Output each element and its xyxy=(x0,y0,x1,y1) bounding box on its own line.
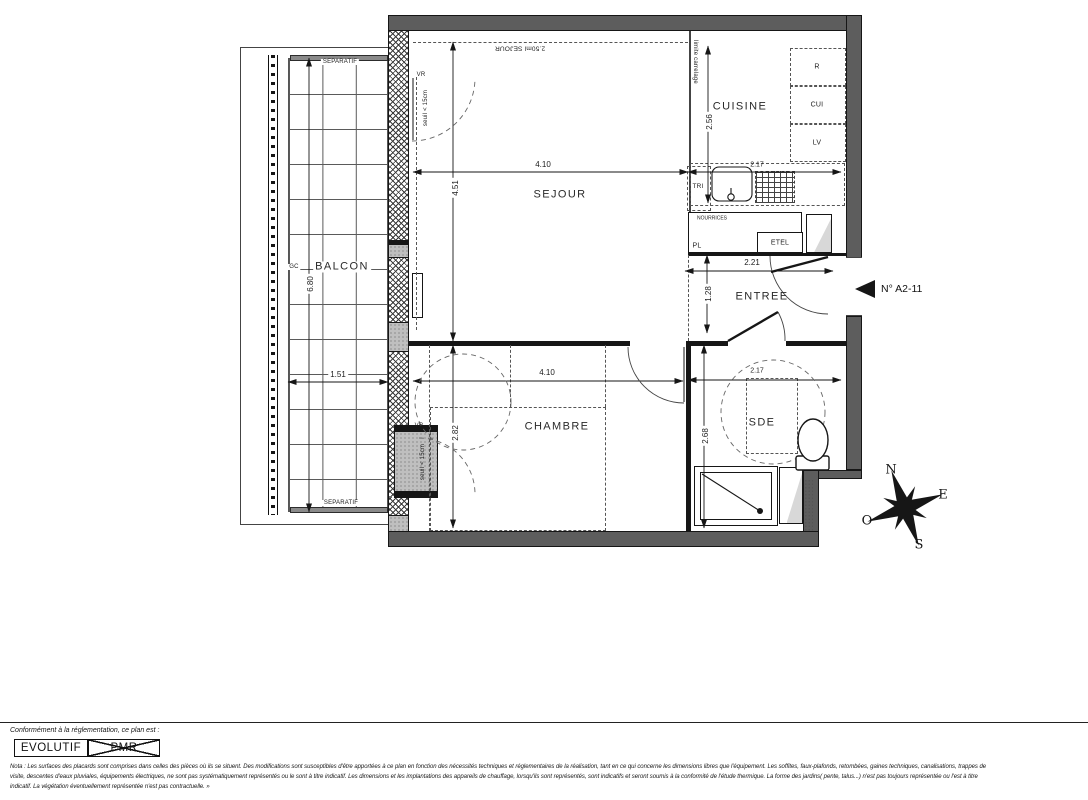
separatif-top-label: SEPARATIF xyxy=(321,59,359,65)
gc-label: GC xyxy=(287,264,300,270)
exterior-wall-right-lower xyxy=(846,316,862,470)
dim-chambre-width: 4.10 xyxy=(537,369,557,377)
legend-intro: Conformément à la réglementation, ce pla… xyxy=(10,727,159,734)
shower-tray-inner xyxy=(700,472,772,520)
room-label-cuisine: CUISINE xyxy=(713,102,767,113)
wall-sejour-chambre xyxy=(408,341,630,346)
facade-glazing-low xyxy=(388,497,409,515)
toilet xyxy=(796,419,829,470)
exterior-wall-step-horizontal xyxy=(812,470,862,479)
compass-north: N xyxy=(885,463,896,478)
tri-label: TRI xyxy=(692,184,703,191)
entrance-arrow-icon xyxy=(855,280,875,298)
dim-sejour-depth: 4.51 xyxy=(452,178,460,198)
vr-chambre-label: VR xyxy=(415,423,424,429)
legend-evolutif-label: EVOLUTIF xyxy=(21,742,81,754)
room-label-sejour: SEJOUR xyxy=(533,190,586,201)
dim-sde-width: 2.17 xyxy=(748,368,766,375)
unit-number-label: N° A2-11 xyxy=(881,283,922,295)
pl-label: PL xyxy=(693,243,702,250)
balcony-slab-edge-top xyxy=(240,47,388,48)
compass-star-diagonal xyxy=(873,476,937,540)
dim-entree-depth: 1.28 xyxy=(705,284,713,304)
nourrices-label: NOURRICES xyxy=(697,217,727,222)
room-label-sde: SDE xyxy=(749,418,776,429)
dim-entree-width: 2.21 xyxy=(742,259,762,267)
dim-sejour-width: 4.10 xyxy=(533,161,553,169)
dim-chambre-depth: 2.82 xyxy=(452,423,460,443)
dim-sde-depth: 2.68 xyxy=(702,426,710,446)
nota-line-1: Nota : Les surfaces des placards sont co… xyxy=(10,764,986,770)
seuil-sejour-label: seuil < 15cm xyxy=(423,90,429,126)
facade-corner-block-bottom xyxy=(388,515,409,532)
compass-rose xyxy=(854,457,957,560)
compass-south: S xyxy=(915,538,924,553)
entry-door-jamb-top xyxy=(846,257,862,258)
door-swing-sejour-balcony xyxy=(412,78,475,141)
fridge-label: R xyxy=(814,64,819,71)
vr-zone-sejour xyxy=(416,77,417,330)
sde-duct xyxy=(779,467,803,524)
legend-pmr-label: PMR xyxy=(110,742,137,754)
door-swing-sde xyxy=(778,312,785,341)
door-leaf-sde xyxy=(728,312,778,341)
room-label-balcon: BALCON xyxy=(313,262,371,273)
facade-glazing-sejour xyxy=(388,31,409,240)
wall-entree-sde-right xyxy=(786,341,846,346)
room-label-entree: ENTREE xyxy=(735,292,788,303)
plan-geometry xyxy=(0,0,1088,800)
balcony-slab-edge-bottom xyxy=(240,524,388,525)
footer-separator-line xyxy=(0,722,1088,723)
dishwasher-label: LV xyxy=(813,140,821,147)
compass-star-main xyxy=(854,457,957,560)
door-leaf-entrance xyxy=(771,257,828,272)
facade-pier-2 xyxy=(388,322,409,352)
nota-line-3: indicatif. La végétation éventuellement … xyxy=(10,784,210,790)
compass-west: O xyxy=(862,514,873,529)
wall-chambre-sde xyxy=(686,341,691,531)
legend-evolutif-box: EVOLUTIF xyxy=(14,739,88,757)
radiator xyxy=(412,273,423,318)
limite-carrelage-label: limite carrelage xyxy=(692,40,698,84)
nota-line-2: visite, descentes d'eaux pluviales, équi… xyxy=(10,774,978,780)
room-label-chambre: CHAMBRE xyxy=(525,422,590,433)
kitchen-drainer xyxy=(755,171,795,203)
toilet-bowl xyxy=(798,419,828,461)
exterior-wall-bottom xyxy=(388,531,819,547)
dim-balcon-length: 6.80 xyxy=(307,274,315,294)
dim-balcon-width: 1.51 xyxy=(328,371,348,379)
step-wall-tile-strip xyxy=(804,479,813,531)
door-swing-entrance xyxy=(770,256,828,314)
vr-sejour-label: VR xyxy=(417,72,426,78)
door-swing-chambre-entry xyxy=(628,347,684,403)
legend-pmr-box: PMR xyxy=(88,739,160,757)
balcony-separator-bottom xyxy=(290,507,388,513)
facade-glazing-mid xyxy=(388,258,409,322)
balcony-slab-edge-left xyxy=(240,47,241,525)
wall-entree-sde-left xyxy=(691,341,728,346)
sejour-surface-line xyxy=(413,42,688,43)
facade-pier-1 xyxy=(388,244,409,258)
exterior-wall-right-upper xyxy=(846,15,862,258)
limite-entree-sejour xyxy=(688,255,689,341)
exterior-wall-top xyxy=(388,15,862,31)
floor-plan-page: SEJOUR CUISINE ENTREE CHAMBRE SDE BALCON… xyxy=(0,0,1088,800)
dim-cuisine-width: 2.17 xyxy=(748,162,766,169)
balcony-railing xyxy=(268,55,278,515)
dim-cuisine-depth: 2.56 xyxy=(706,112,714,132)
separatif-bottom-label: SEPARATIF xyxy=(322,500,360,506)
hob-label: CUI xyxy=(811,102,824,109)
compass-east: E xyxy=(938,488,948,503)
kitchen-duct xyxy=(806,214,832,253)
seuil-chambre-label: seuil < 15cm xyxy=(420,444,426,480)
sejour-surface-label: 2.50ml SEJOUR xyxy=(495,44,545,51)
wall-pl-entree xyxy=(688,253,846,256)
balcony-tile-grid xyxy=(288,58,388,512)
chambre-placard-line-2 xyxy=(605,345,606,407)
chambre-placard-line-1 xyxy=(510,345,511,407)
etel-label: ETEL xyxy=(771,240,789,247)
